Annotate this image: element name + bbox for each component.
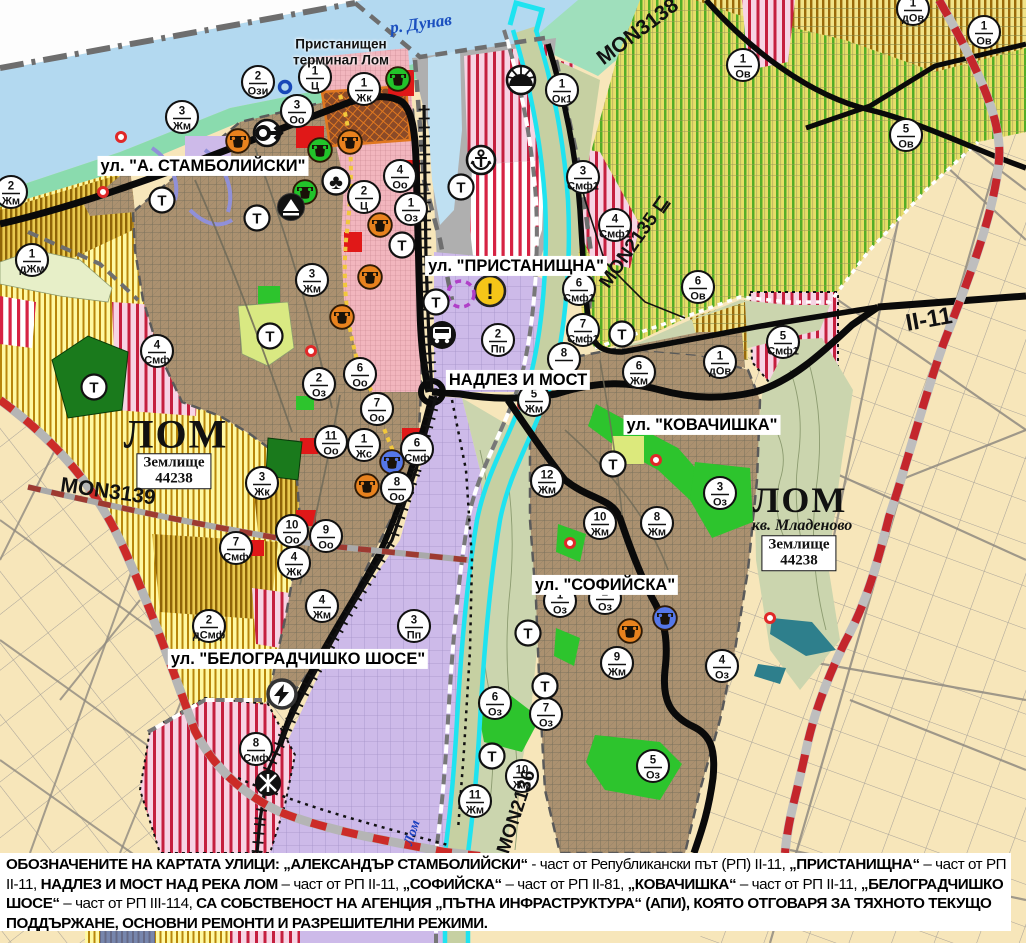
svg-text:2: 2 [255, 71, 261, 83]
svg-text:Оо: Оо [323, 446, 339, 458]
svg-text:Жм: Жм [1, 196, 20, 208]
svg-text:дОв: дОв [902, 13, 925, 25]
svg-text:6: 6 [695, 276, 701, 288]
svg-text:T: T [157, 193, 166, 210]
svg-text:1: 1 [408, 198, 415, 210]
svg-text:5: 5 [650, 755, 657, 767]
svg-text:Оо: Оо [352, 378, 368, 390]
svg-text:Пп: Пп [491, 344, 506, 356]
svg-text:3: 3 [294, 100, 300, 112]
svg-text:3: 3 [309, 269, 315, 281]
svg-text:4: 4 [291, 552, 298, 564]
svg-text:Смф1: Смф1 [567, 181, 599, 193]
svg-text:4: 4 [397, 165, 404, 177]
svg-text:5: 5 [780, 331, 787, 343]
svg-text:Смф: Смф [144, 355, 170, 367]
svg-text:Оо: Оо [284, 535, 300, 547]
svg-text:Оо: Оо [369, 413, 385, 425]
svg-text:3: 3 [580, 166, 586, 178]
svg-text:5: 5 [531, 389, 538, 401]
svg-text:Смф: Смф [243, 753, 269, 765]
svg-text:3: 3 [259, 472, 265, 484]
svg-text:6: 6 [492, 692, 498, 704]
svg-text:6: 6 [636, 361, 642, 373]
svg-text:Ов: Ов [690, 291, 706, 303]
svg-text:Смф1: Смф1 [767, 346, 799, 358]
svg-text:10: 10 [594, 512, 607, 524]
svg-text:1: 1 [361, 78, 368, 90]
svg-text:дСмф: дСмф [193, 630, 226, 642]
svg-text:T: T [397, 238, 406, 255]
svg-text:10: 10 [286, 520, 299, 532]
svg-text:1: 1 [361, 434, 368, 446]
svg-text:T: T [540, 679, 549, 696]
svg-text:4: 4 [612, 214, 619, 226]
svg-text:дОв: дОв [709, 366, 732, 378]
svg-text:1: 1 [559, 79, 566, 91]
svg-text:Оз: Оз [598, 602, 613, 614]
svg-text:3: 3 [179, 106, 185, 118]
svg-text:8: 8 [394, 477, 401, 489]
svg-text:Оо: Оо [318, 540, 334, 552]
svg-text:Ц: Ц [311, 81, 319, 93]
svg-text:4: 4 [319, 595, 326, 607]
svg-text:Пп: Пп [407, 630, 422, 642]
svg-text:Жм: Жм [302, 284, 321, 296]
svg-text:T: T [617, 327, 626, 344]
svg-text:Смф: Смф [223, 552, 249, 564]
svg-text:12: 12 [541, 470, 554, 482]
svg-text:4: 4 [154, 340, 161, 352]
svg-text:Жк: Жк [285, 567, 302, 579]
svg-text:Ози: Ози [248, 86, 269, 98]
svg-text:2: 2 [316, 373, 322, 385]
svg-text:Оз: Оз [404, 213, 419, 225]
svg-text:Оо: Оо [389, 492, 405, 504]
svg-text:9: 9 [614, 652, 620, 664]
svg-text:Жс: Жс [355, 449, 372, 461]
svg-text:T: T [252, 211, 261, 228]
svg-text:дЖм: дЖм [19, 264, 44, 276]
svg-text:6: 6 [414, 438, 420, 450]
svg-text:7: 7 [374, 398, 380, 410]
svg-text:T: T [456, 180, 465, 197]
svg-text:Жм: Жм [537, 485, 556, 497]
svg-text:Жм: Жм [629, 376, 648, 388]
svg-text:7: 7 [580, 319, 586, 331]
svg-text:Жм: Жм [524, 404, 543, 416]
svg-text:Ов: Ов [976, 36, 992, 48]
svg-text:11: 11 [325, 431, 338, 443]
svg-text:2: 2 [361, 186, 367, 198]
svg-text:Жм: Жм [607, 667, 626, 679]
svg-text:T: T [431, 295, 440, 312]
svg-text:Жк: Жк [253, 487, 270, 499]
svg-text:Ов: Ов [898, 139, 914, 151]
svg-text:Жм: Жм [312, 610, 331, 622]
svg-text:Оо: Оо [392, 180, 408, 192]
svg-text:Жм: Жм [590, 527, 609, 539]
svg-text:T: T [89, 380, 98, 397]
svg-text:Жм: Жм [172, 121, 191, 133]
svg-text:Смф1: Смф1 [563, 293, 595, 305]
svg-text:1: 1 [910, 0, 917, 10]
svg-text:1: 1 [740, 54, 747, 66]
svg-text:11: 11 [469, 790, 482, 802]
svg-text:Жк: Жк [355, 93, 372, 105]
svg-text:7: 7 [233, 537, 239, 549]
svg-text:8: 8 [561, 348, 568, 360]
svg-text:Оз: Оз [539, 718, 554, 730]
svg-text:Оз: Оз [312, 388, 327, 400]
svg-text:4: 4 [719, 655, 726, 667]
svg-text:Оз: Оз [488, 707, 503, 719]
svg-text:Ов: Ов [735, 69, 751, 81]
svg-text:T: T [608, 457, 617, 474]
svg-text:T: T [487, 749, 496, 766]
svg-text:2: 2 [8, 181, 14, 193]
svg-text:3: 3 [411, 615, 417, 627]
svg-text:1: 1 [981, 21, 988, 33]
svg-text:Оз: Оз [713, 497, 728, 509]
svg-text:Жм: Жм [465, 805, 484, 817]
svg-text:1: 1 [717, 351, 724, 363]
svg-text:3: 3 [717, 482, 723, 494]
svg-text:8: 8 [654, 512, 661, 524]
svg-text:7: 7 [543, 703, 549, 715]
svg-text:♣: ♣ [329, 170, 343, 194]
svg-text:Оз: Оз [553, 605, 568, 617]
svg-text:Смф1: Смф1 [567, 334, 599, 346]
svg-text:Оо: Оо [289, 115, 305, 127]
svg-text:!: ! [486, 279, 493, 304]
svg-text:Смф: Смф [404, 453, 430, 465]
svg-text:Оз: Оз [715, 670, 730, 682]
svg-text:9: 9 [323, 525, 329, 537]
svg-text:Ц: Ц [360, 201, 368, 213]
svg-text:Ок1: Ок1 [552, 94, 572, 106]
svg-text:T: T [523, 626, 532, 643]
svg-text:Оз: Оз [646, 770, 661, 782]
svg-text:1: 1 [29, 249, 36, 261]
svg-text:Жм: Жм [647, 527, 666, 539]
svg-text:8: 8 [253, 738, 260, 750]
svg-text:6: 6 [576, 278, 582, 290]
svg-text:6: 6 [357, 363, 363, 375]
svg-text:2: 2 [206, 615, 212, 627]
svg-text:2: 2 [495, 329, 501, 341]
svg-text:5: 5 [903, 124, 910, 136]
svg-text:T: T [265, 329, 274, 346]
